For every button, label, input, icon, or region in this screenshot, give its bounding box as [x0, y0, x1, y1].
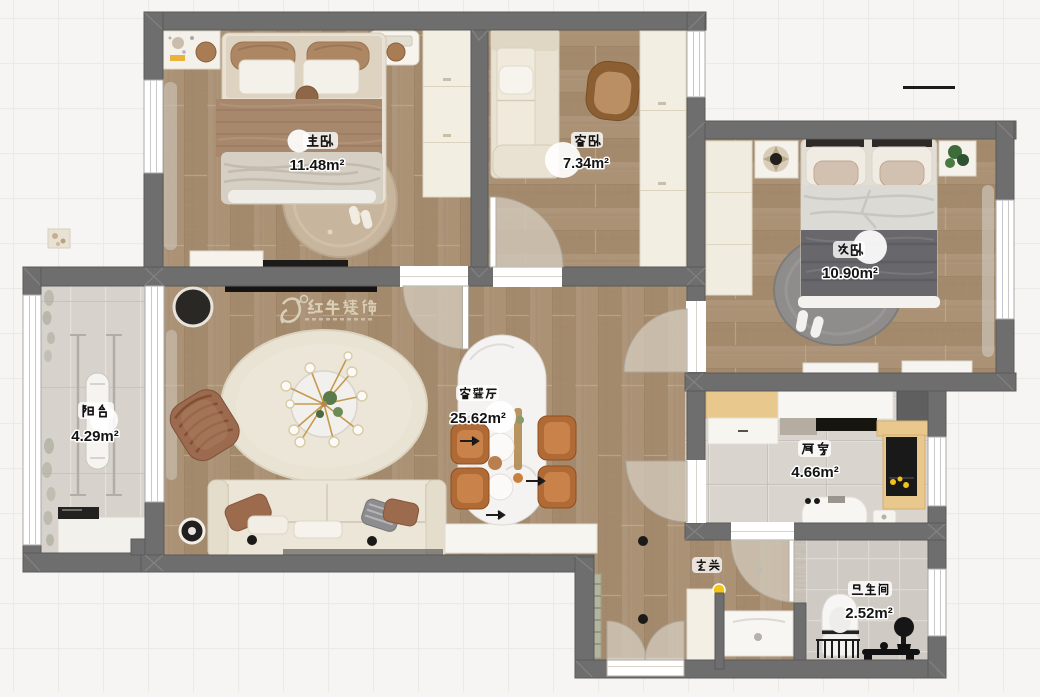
svg-text:11.48m²: 11.48m² [289, 157, 344, 174]
svg-text:25.62m²: 25.62m² [450, 410, 506, 427]
svg-text:4.29m²: 4.29m² [71, 428, 119, 445]
svg-text:4.66m²: 4.66m² [791, 464, 839, 481]
svg-text:7.34m²: 7.34m² [563, 156, 609, 172]
svg-text:10.90m²: 10.90m² [822, 265, 878, 282]
svg-text:2.52m²: 2.52m² [845, 605, 893, 622]
